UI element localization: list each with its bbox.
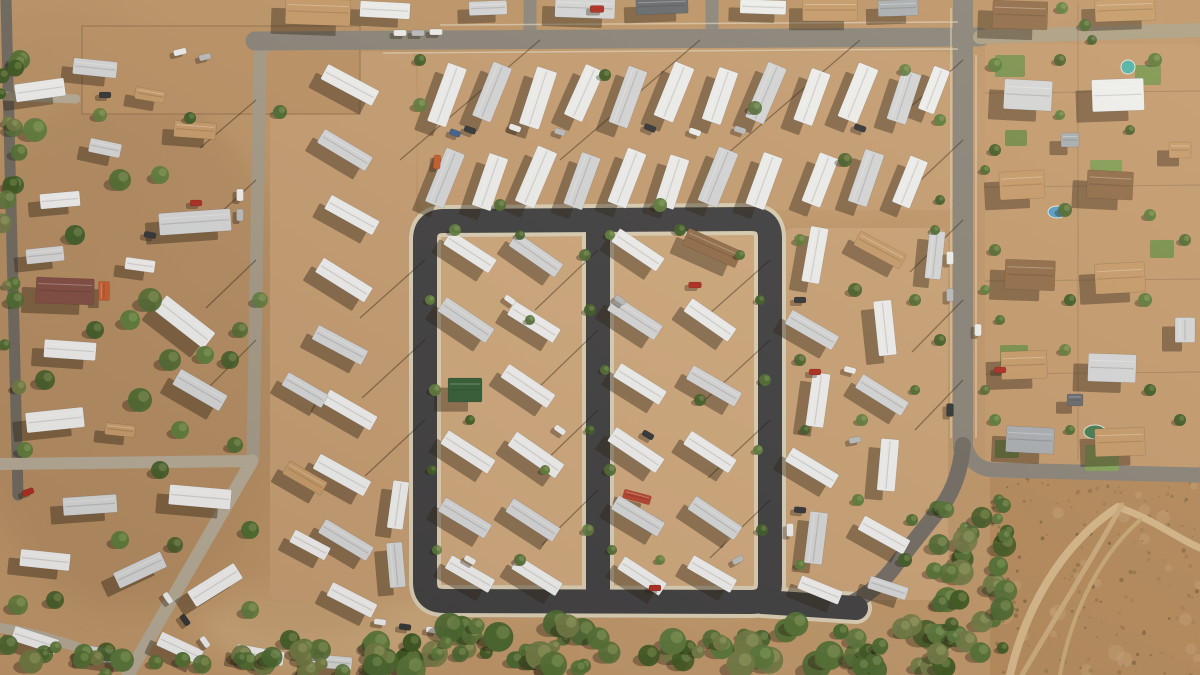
aerial-scene-canvas bbox=[0, 0, 1200, 675]
page: { "scene": { "subject": "aerial-drone-vi… bbox=[0, 0, 1200, 675]
aerial-photo-mobile-home-park bbox=[0, 0, 1200, 675]
light-layer bbox=[0, 0, 1200, 675]
sunlight-overlay bbox=[0, 0, 1200, 675]
